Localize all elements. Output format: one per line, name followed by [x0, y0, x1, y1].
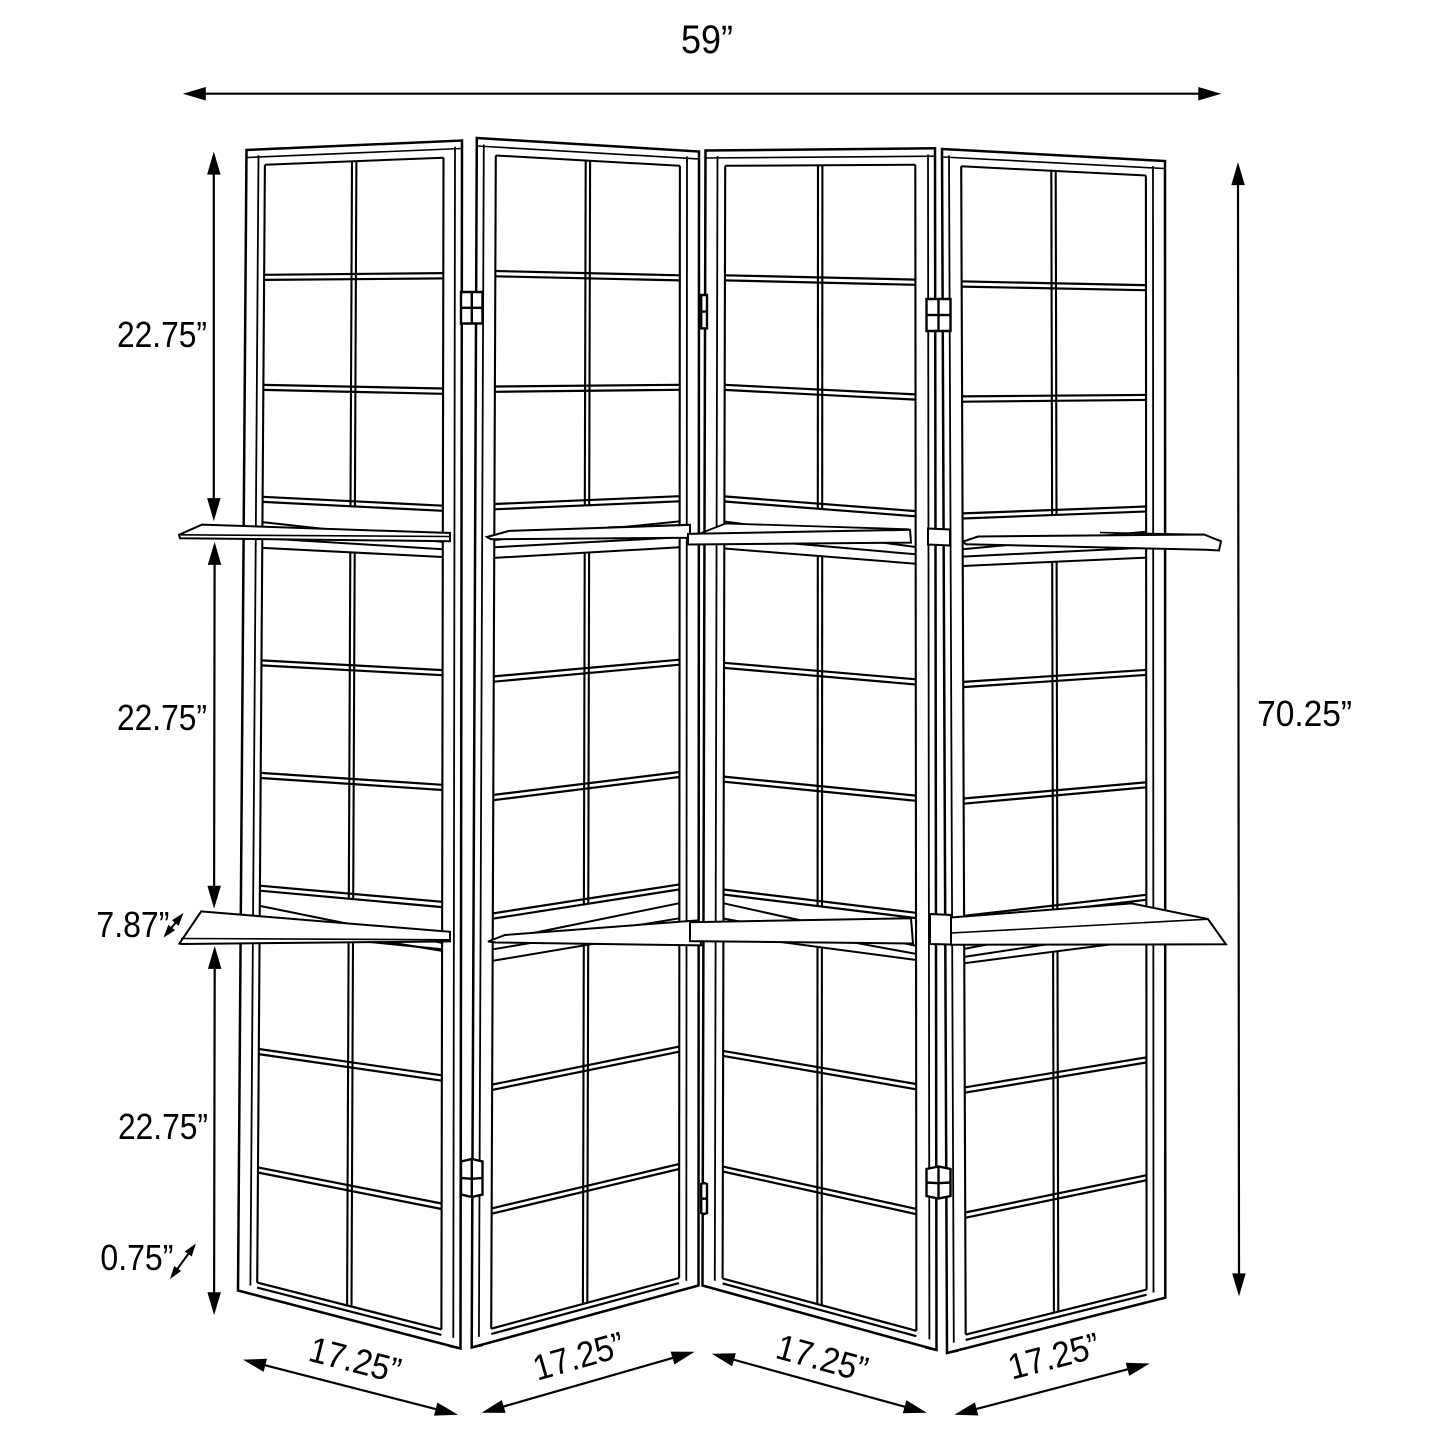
svg-text:22.75”: 22.75” [118, 1106, 208, 1147]
svg-text:7.87”: 7.87” [96, 904, 169, 945]
svg-text:70.25”: 70.25” [1257, 693, 1352, 734]
svg-text:0.75”: 0.75” [100, 1237, 173, 1278]
svg-text:22.75”: 22.75” [117, 697, 207, 738]
svg-text:22.75”: 22.75” [117, 314, 207, 355]
svg-text:59”: 59” [681, 18, 733, 62]
